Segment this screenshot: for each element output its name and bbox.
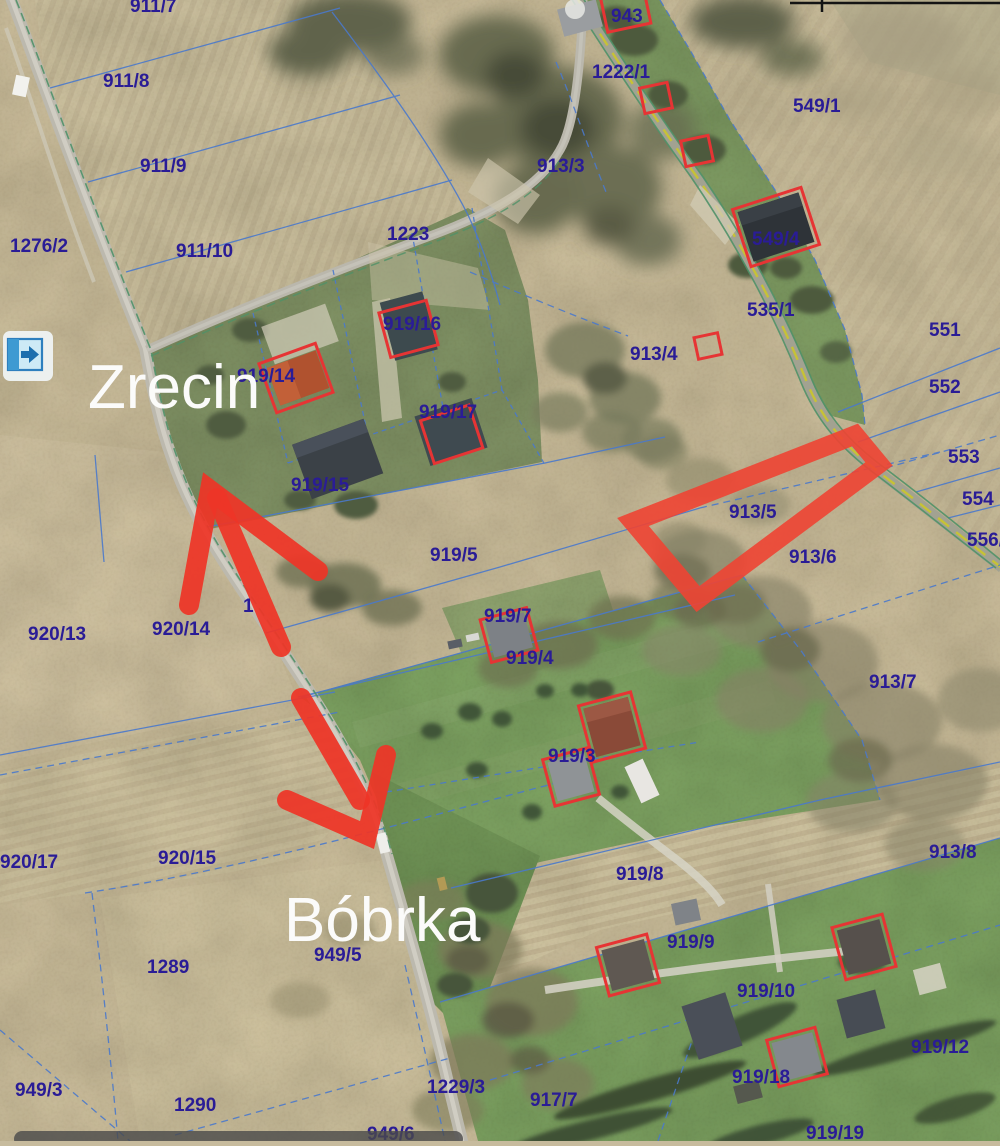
svg-text:Bóbrka: Bóbrka bbox=[284, 886, 481, 955]
svg-text:920/17: 920/17 bbox=[0, 852, 58, 873]
svg-text:917/7: 917/7 bbox=[530, 1090, 578, 1111]
svg-text:552: 552 bbox=[929, 377, 961, 398]
svg-text:913/6: 913/6 bbox=[789, 547, 837, 568]
svg-text:920/15: 920/15 bbox=[158, 848, 217, 869]
svg-text:535/1: 535/1 bbox=[747, 300, 795, 321]
svg-text:1289: 1289 bbox=[147, 957, 189, 978]
svg-text:549/4: 549/4 bbox=[752, 229, 800, 250]
svg-text:919/16: 919/16 bbox=[383, 314, 441, 335]
svg-text:949/3: 949/3 bbox=[15, 1080, 63, 1101]
svg-text:919/7: 919/7 bbox=[484, 606, 532, 627]
svg-text:919/15: 919/15 bbox=[291, 475, 350, 496]
svg-text:1229/3: 1229/3 bbox=[427, 1077, 485, 1098]
svg-text:911/7: 911/7 bbox=[130, 0, 177, 17]
svg-text:554: 554 bbox=[962, 489, 994, 510]
svg-text:913/4: 913/4 bbox=[630, 344, 678, 365]
svg-text:913/5: 913/5 bbox=[729, 502, 777, 523]
svg-text:919/12: 919/12 bbox=[911, 1037, 969, 1058]
svg-text:919/17: 919/17 bbox=[419, 402, 477, 423]
svg-text:920/13: 920/13 bbox=[28, 624, 86, 645]
svg-text:919/5: 919/5 bbox=[430, 545, 478, 566]
svg-text:911/10: 911/10 bbox=[176, 241, 233, 262]
svg-text:553: 553 bbox=[948, 447, 980, 468]
svg-text:911/8: 911/8 bbox=[103, 71, 150, 92]
svg-text:919/9: 919/9 bbox=[667, 932, 715, 953]
svg-text:913/7: 913/7 bbox=[869, 672, 917, 693]
svg-text:913/3: 913/3 bbox=[537, 156, 585, 177]
svg-text:1276/2: 1276/2 bbox=[10, 236, 68, 257]
svg-text:Zrecin: Zrecin bbox=[88, 353, 260, 422]
svg-text:943: 943 bbox=[611, 6, 643, 27]
svg-text:911/9: 911/9 bbox=[140, 156, 187, 177]
svg-text:1: 1 bbox=[243, 596, 254, 617]
svg-text:913/8: 913/8 bbox=[929, 842, 977, 863]
svg-text:919/18: 919/18 bbox=[732, 1067, 790, 1088]
svg-text:1223: 1223 bbox=[387, 224, 429, 245]
svg-text:920/14: 920/14 bbox=[152, 619, 211, 640]
svg-text:1290: 1290 bbox=[174, 1095, 216, 1116]
svg-text:919/4: 919/4 bbox=[506, 648, 554, 669]
svg-text:919/10: 919/10 bbox=[737, 981, 795, 1002]
svg-text:919/3: 919/3 bbox=[548, 746, 596, 767]
svg-text:1222/1: 1222/1 bbox=[592, 62, 651, 83]
svg-text:919/19: 919/19 bbox=[806, 1123, 864, 1141]
svg-text:551: 551 bbox=[929, 320, 961, 341]
svg-text:556/: 556/ bbox=[967, 530, 1000, 551]
svg-text:549/1: 549/1 bbox=[793, 96, 841, 117]
svg-text:919/8: 919/8 bbox=[616, 864, 664, 885]
